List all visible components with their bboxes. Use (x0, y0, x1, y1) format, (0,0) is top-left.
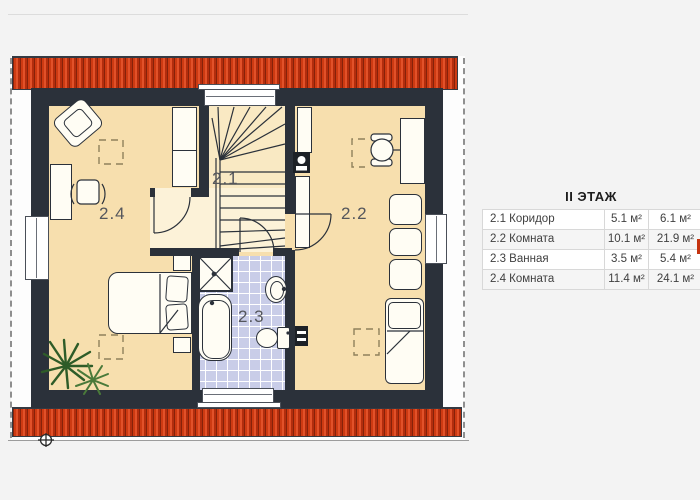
room-name-cell: 2.1 Коридор (483, 210, 605, 229)
room-label-room22: 2.2 (341, 204, 368, 224)
floor-title: II ЭТАЖ (482, 189, 700, 204)
area-table: 2.1 Коридор 5.1 м² 6.1 м² 2.2 Комната 10… (482, 209, 700, 290)
area2-cell: 24.1 м² (649, 270, 700, 289)
table-row: 2.3 Ванная 3.5 м² 5.4 м² (483, 250, 700, 270)
area1-cell: 3.5 м² (605, 250, 649, 269)
plant (42, 340, 108, 394)
area2-cell: 5.4 м² (649, 250, 700, 269)
area2-cell: 6.1 м² (649, 210, 700, 229)
survey-marker (38, 433, 54, 447)
room-label-corridor: 2.1 (212, 169, 239, 189)
room-label-room24: 2.4 (99, 204, 126, 224)
table-row: 2.4 Комната 11.4 м² 24.1 м² (483, 270, 700, 290)
room-name-cell: 2.2 Комната (483, 230, 605, 249)
area1-cell: 11.4 м² (605, 270, 649, 289)
room-label-bathroom: 2.3 (238, 307, 265, 327)
room-name-cell: 2.3 Ванная (483, 250, 605, 269)
area2-cell: 21.9 м² (649, 230, 700, 249)
page: 2.1 2.2 2.3 2.4 II ЭТАЖ 2.1 Коридор 5.1 … (0, 0, 700, 500)
table-row: 2.2 Комната 10.1 м² 21.9 м² (483, 230, 700, 250)
room-name-cell: 2.4 Комната (483, 270, 605, 289)
table-row: 2.1 Коридор 5.1 м² 6.1 м² (483, 210, 700, 230)
area1-cell: 5.1 м² (605, 210, 649, 229)
area1-cell: 10.1 м² (605, 230, 649, 249)
